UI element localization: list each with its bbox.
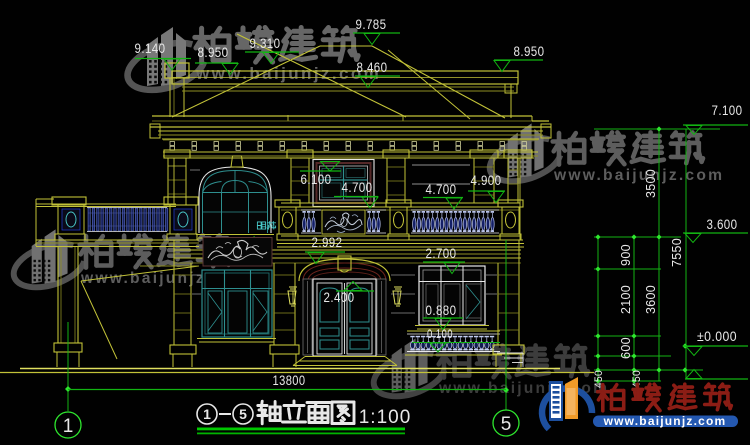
svg-text:13800: 13800 — [273, 373, 306, 388]
svg-text:3.600: 3.600 — [707, 216, 738, 232]
svg-text:1:100: 1:100 — [359, 407, 412, 428]
svg-text:2.700: 2.700 — [426, 245, 457, 261]
svg-text:1: 1 — [63, 416, 74, 437]
svg-text:9.785: 9.785 — [356, 16, 387, 32]
svg-text:3500: 3500 — [644, 169, 658, 198]
svg-text:9.140: 9.140 — [135, 40, 166, 56]
svg-text:0.880: 0.880 — [426, 302, 457, 318]
svg-text:900: 900 — [619, 244, 633, 266]
svg-text:9.310: 9.310 — [250, 35, 281, 51]
svg-text:2.992: 2.992 — [312, 234, 343, 250]
svg-text:4.700: 4.700 — [342, 179, 373, 195]
svg-text:www.baijunjz.com: www.baijunjz.com — [603, 414, 727, 428]
svg-text:7.100: 7.100 — [712, 102, 743, 118]
svg-text:5: 5 — [501, 414, 512, 435]
svg-text:5: 5 — [239, 406, 247, 422]
svg-text:www.baijunjz.com: www.baijunjz.com — [553, 167, 724, 184]
svg-text:8.950: 8.950 — [198, 44, 229, 60]
svg-text:8.950: 8.950 — [514, 43, 545, 59]
svg-text:www.baijunjz.com: www.baijunjz.com — [195, 64, 381, 83]
svg-text:8.460: 8.460 — [357, 59, 388, 75]
svg-text:4.900: 4.900 — [471, 172, 502, 188]
svg-text:6.100: 6.100 — [301, 171, 332, 187]
svg-text:4.700: 4.700 — [426, 181, 457, 197]
svg-text:±0.000: ±0.000 — [697, 328, 737, 344]
svg-text:7550: 7550 — [670, 238, 684, 267]
svg-text:1: 1 — [203, 406, 211, 422]
svg-text:600: 600 — [619, 337, 633, 359]
svg-text:3600: 3600 — [644, 285, 658, 314]
svg-text:2100: 2100 — [619, 285, 633, 314]
svg-text:0.100: 0.100 — [427, 327, 453, 341]
